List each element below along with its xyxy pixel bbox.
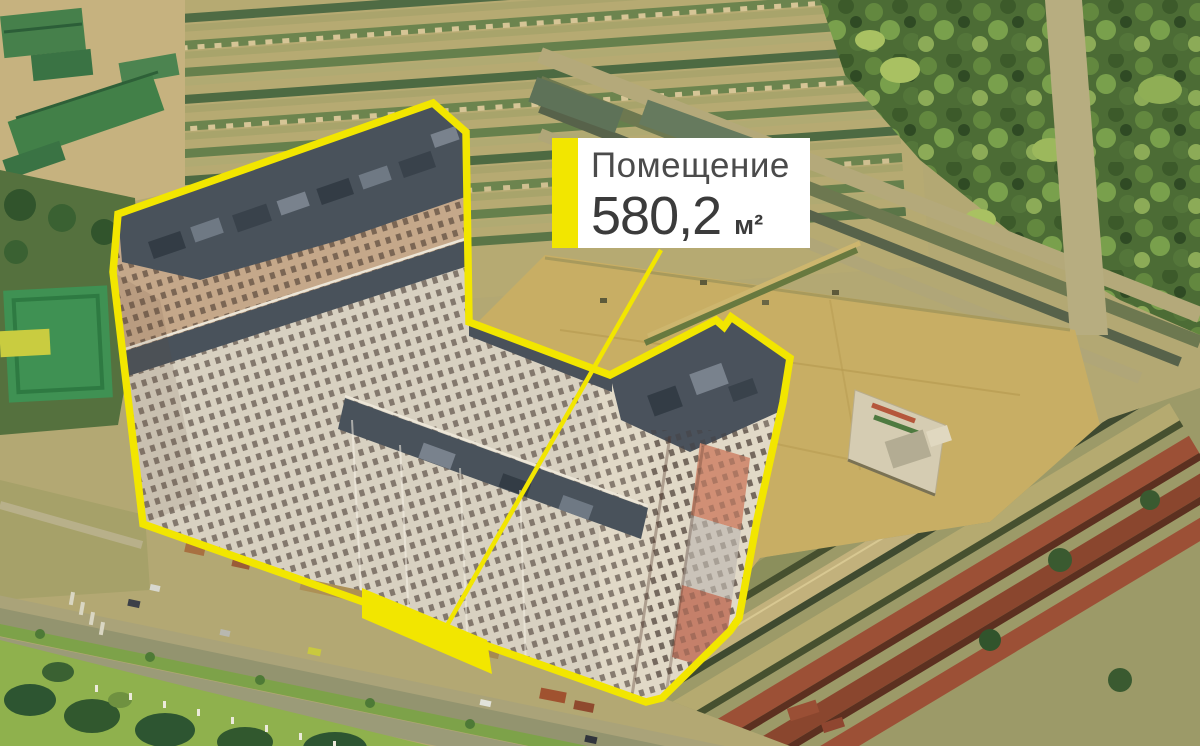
label-accent-bar: [552, 138, 578, 248]
area-label-card: Помещение 580,2 м²: [552, 138, 810, 248]
label-box: Помещение 580,2 м²: [578, 138, 810, 248]
label-title: Помещение: [591, 147, 810, 185]
label-area-unit: м²: [734, 210, 763, 241]
label-area-value: 580,2: [591, 188, 721, 244]
aerial-photo-scene: [0, 0, 1200, 746]
label-value-row: 580,2 м²: [591, 188, 810, 244]
aerial-photo: Помещение 580,2 м²: [0, 0, 1200, 746]
